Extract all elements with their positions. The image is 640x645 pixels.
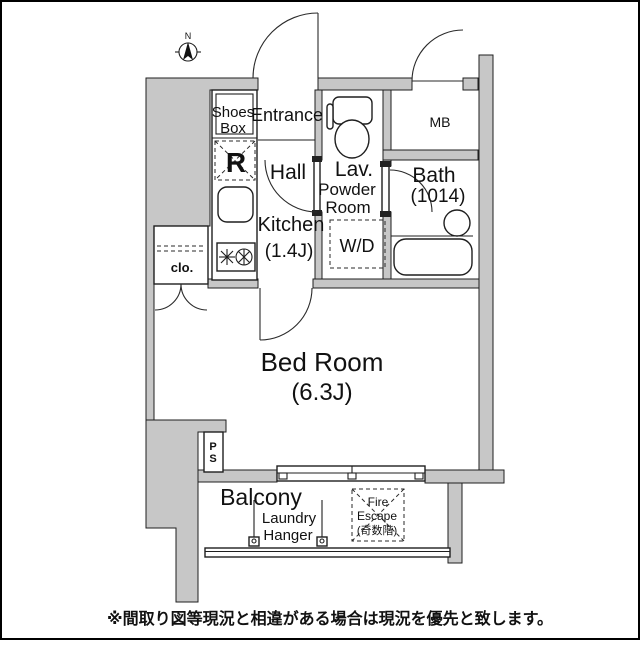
north-compass: N bbox=[175, 31, 201, 61]
shoes-box-label-1: Shoes bbox=[212, 104, 255, 121]
exterior-walls bbox=[146, 55, 504, 602]
balcony-label: Balcony bbox=[220, 484, 302, 510]
laundry-label-1: Laundry bbox=[262, 510, 317, 527]
bedroom-size-label: (6.3J) bbox=[291, 379, 352, 406]
bath-door-hinge-bottom bbox=[380, 211, 391, 217]
powder-door-hinge-top bbox=[312, 156, 322, 162]
kitchen-size-label: (1.4J) bbox=[265, 241, 314, 262]
shoes-box-label-2: Box bbox=[220, 120, 246, 137]
wall-top-right bbox=[463, 78, 478, 90]
wall-powder-bath-lower bbox=[383, 212, 391, 284]
powder-label-2: Room bbox=[325, 198, 370, 217]
sliding-window bbox=[277, 466, 425, 481]
entrance-label: Entrance bbox=[251, 105, 323, 125]
bedroom-door bbox=[260, 288, 312, 340]
pipe-space-label-1: P bbox=[209, 441, 216, 453]
wall-right bbox=[479, 55, 493, 472]
hall-label: Hall bbox=[270, 161, 306, 184]
washer-dryer-label: W/D bbox=[340, 236, 375, 256]
kitchen-sink bbox=[218, 187, 253, 222]
balcony-railing bbox=[205, 548, 450, 557]
bath-label: Bath bbox=[412, 164, 455, 187]
toilet-icon bbox=[327, 97, 372, 158]
floor-plan-page: N Shoes Box Entrance R Hall Kitchen (1.4… bbox=[0, 0, 640, 640]
laundry-label-2: Hanger bbox=[263, 527, 312, 544]
laundry-pole-right bbox=[317, 500, 327, 546]
entrance-door-arc bbox=[253, 13, 318, 78]
bedroom-door-arc bbox=[260, 288, 312, 340]
bath-size-label: (1014) bbox=[411, 186, 466, 207]
refrigerator-label: R bbox=[226, 147, 246, 178]
toilet-handle bbox=[327, 104, 333, 129]
fire-escape-label-1: Fire bbox=[368, 495, 389, 509]
bath-door-hinge-top bbox=[380, 161, 391, 167]
pipe-space-label-2: S bbox=[209, 453, 216, 465]
wall-bedroom-bottom-right bbox=[425, 470, 504, 483]
mb-door bbox=[412, 30, 463, 81]
bathtub-icon bbox=[394, 239, 472, 275]
fire-escape-label-3: (奇数階) bbox=[357, 523, 397, 537]
mb-door-arc bbox=[412, 30, 463, 81]
bath-door-leaf bbox=[382, 166, 389, 212]
fire-escape-label-2: Escape bbox=[357, 509, 397, 523]
closet-label: clo. bbox=[171, 260, 193, 275]
toilet-bowl bbox=[335, 120, 369, 158]
kitchen-label: Kitchen bbox=[258, 214, 325, 236]
wall-top-middle bbox=[318, 78, 412, 90]
meter-box-label: MB bbox=[430, 114, 451, 130]
lavatory-label: Lav. bbox=[335, 158, 373, 181]
wall-bath-bedroom bbox=[313, 279, 479, 288]
wall-hall-powder-upper bbox=[315, 90, 322, 160]
wall-mb-bottom bbox=[383, 150, 478, 160]
floor-plan-svg: N Shoes Box Entrance R Hall Kitchen (1.4… bbox=[0, 0, 640, 640]
washbasin-icon bbox=[444, 210, 470, 236]
compass-needle-icon bbox=[183, 42, 193, 60]
caption-disclaimer: ※間取り図等現況と相違がある場合は現況を優先と致します。 bbox=[107, 609, 553, 628]
closet-door-arc-left bbox=[155, 284, 181, 310]
closet-door-arc-right bbox=[181, 284, 207, 310]
compass-north-label: N bbox=[185, 31, 192, 41]
powder-label-1: Powder bbox=[318, 180, 376, 199]
bedroom-label: Bed Room bbox=[261, 347, 384, 377]
closet-box bbox=[154, 226, 208, 284]
burner-left-icon bbox=[219, 249, 235, 265]
bath-fixtures bbox=[391, 210, 473, 275]
